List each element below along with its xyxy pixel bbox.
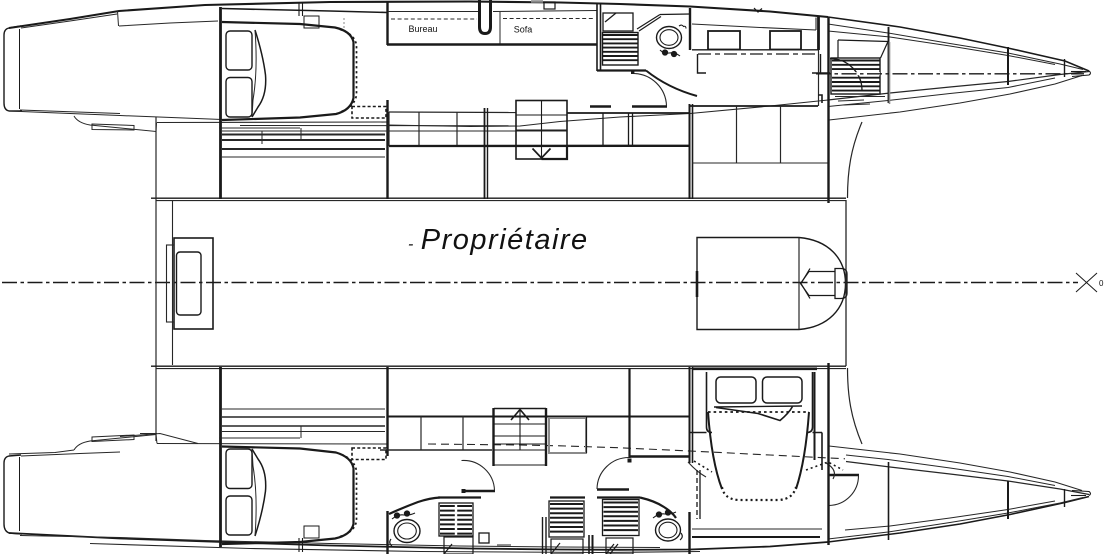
svg-text:Sofa: Sofa <box>514 25 533 35</box>
svg-text:Bureau: Bureau <box>408 24 437 34</box>
svg-text:- Propriétaire: - Propriétaire <box>408 224 589 256</box>
svg-text:0: 0 <box>1099 279 1104 288</box>
